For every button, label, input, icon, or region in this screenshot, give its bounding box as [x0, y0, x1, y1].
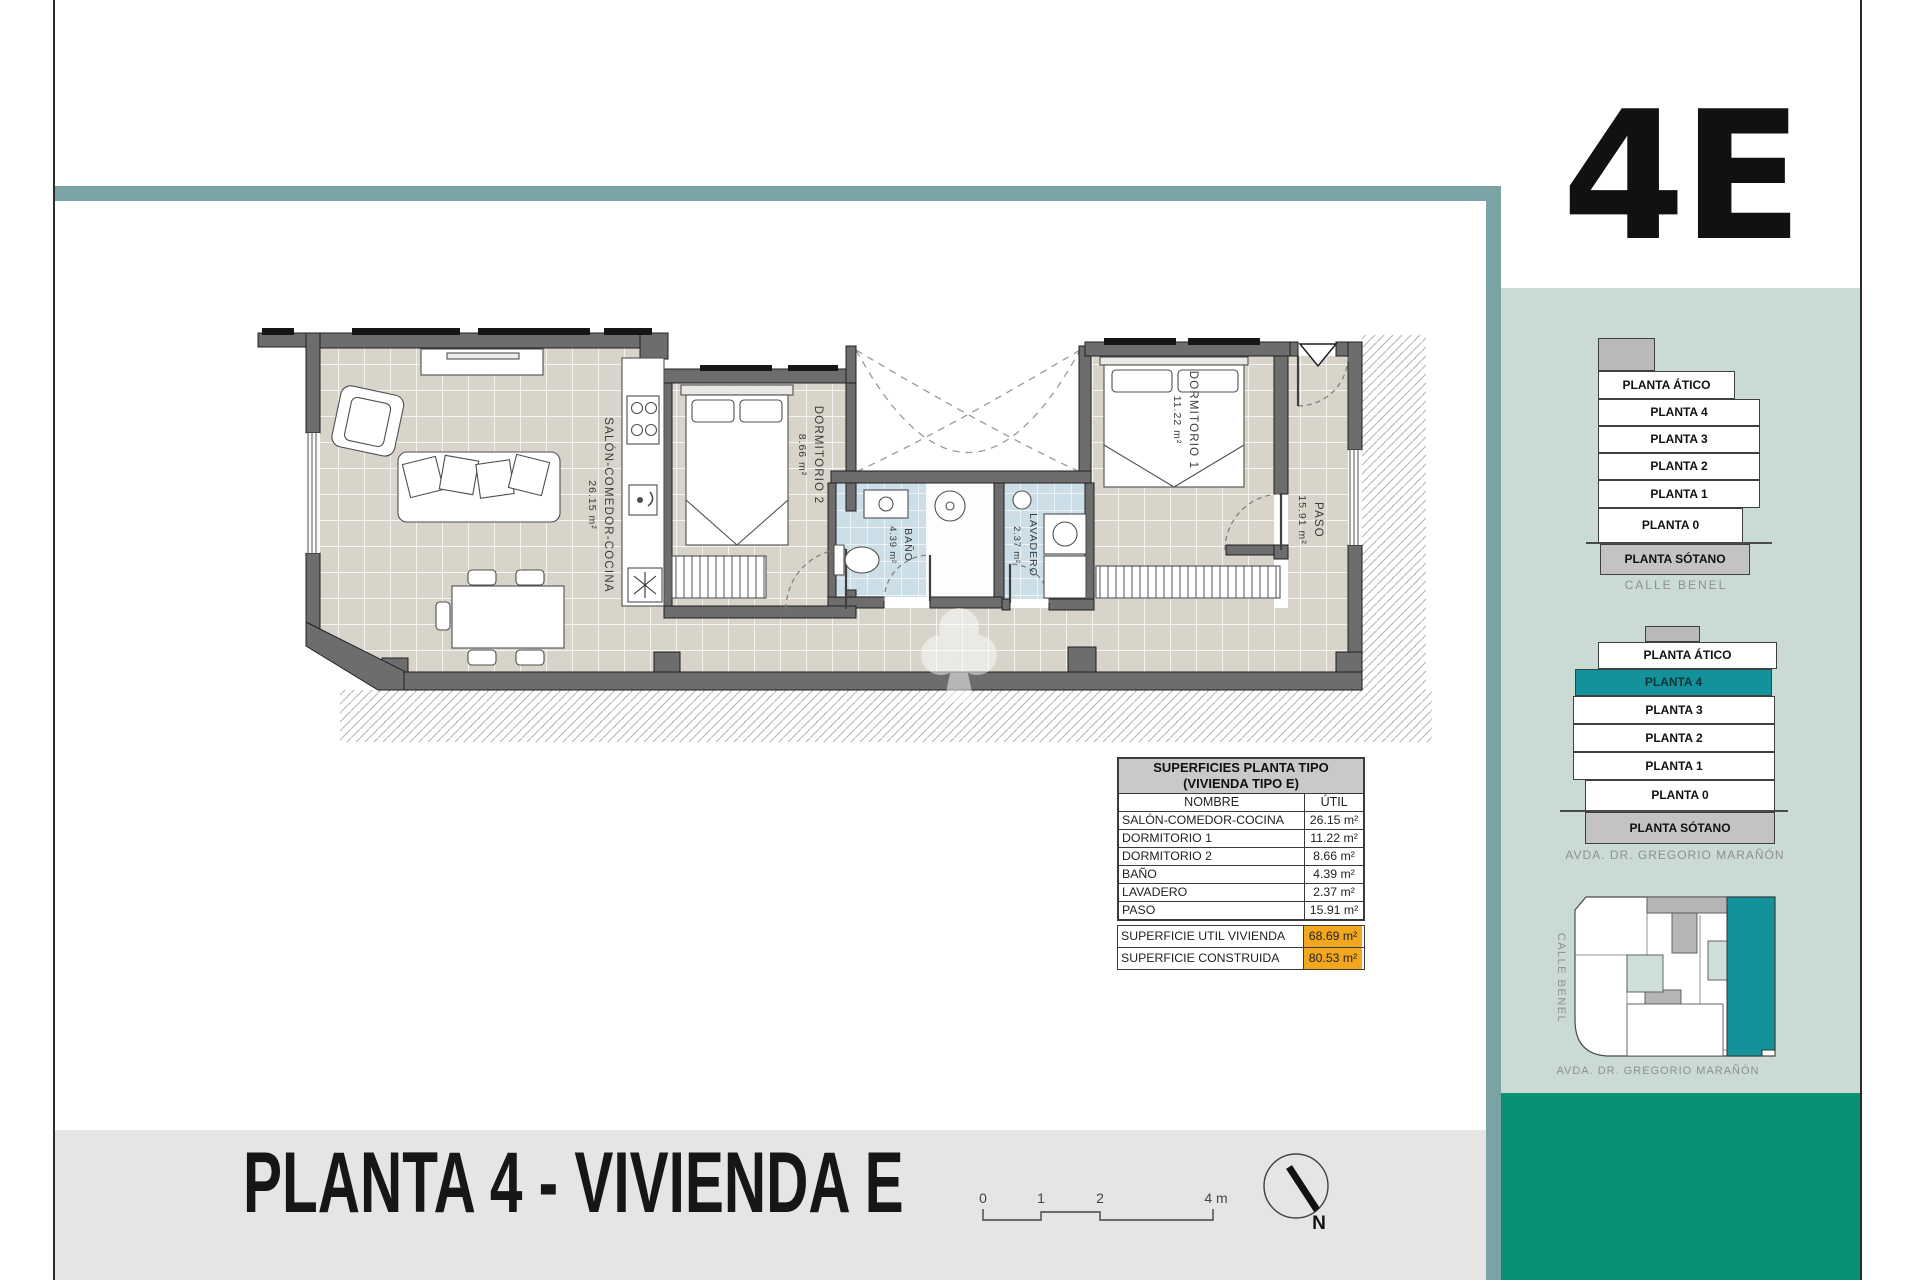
label-dorm2-area: 8.66 m²: [796, 434, 808, 477]
left-wall: [306, 333, 320, 433]
sofa: [398, 452, 560, 522]
table-row: DORMITORIO 2 8.66 m²: [1119, 848, 1363, 866]
row-name: DORMITORIO 1: [1119, 830, 1305, 847]
wardrobe-paso: [1096, 566, 1280, 598]
scale-tick-0: 0: [979, 1190, 987, 1206]
surfaces-table-title: SUPERFICIES PLANTA TIPO (VIVIENDA TIPO E…: [1119, 759, 1363, 794]
row-util: 4.39 m²: [1305, 866, 1363, 883]
floor-item-planta1[interactable]: PLANTA 1: [1573, 752, 1775, 780]
summary-value-highlight: 80.53 m²: [1304, 948, 1362, 969]
scale-labels: 0 1 2 4 m: [979, 1190, 1228, 1206]
row-util: 26.15 m²: [1305, 812, 1363, 829]
label-paso: PASO: [1312, 502, 1324, 538]
roof-box: [1598, 338, 1655, 371]
label-lavadero-area: 2.37 m²: [1011, 526, 1022, 564]
washbasin: [864, 490, 908, 518]
floor-item-sotano[interactable]: PLANTA SÓTANO: [1585, 812, 1775, 844]
row-util: 8.66 m²: [1305, 848, 1363, 865]
floor-item-planta4[interactable]: PLANTA 4: [1598, 399, 1760, 426]
north-label: N: [1312, 1213, 1326, 1234]
frame-line-right: [1860, 0, 1862, 1280]
site-key-plan: CALLE BENEL AVDA. DR. GREGORIO MARAÑÓN: [1540, 888, 1810, 1088]
row-name: BAÑO: [1119, 866, 1305, 883]
table-row: DORMITORIO 1 11.22 m²: [1119, 830, 1363, 848]
right-wall: [1348, 342, 1362, 450]
sidebar-footer-band: [1501, 1093, 1860, 1280]
surfaces-table-title-line1: SUPERFICIES PLANTA TIPO: [1119, 760, 1363, 776]
surface-summary-table: SUPERFICIE UTIL VIVIENDA 68.69 m² SUPERF…: [1117, 925, 1365, 970]
col-header-nombre: NOMBRE: [1119, 794, 1305, 811]
site-street-side: CALLE BENEL: [1555, 933, 1567, 1023]
toilet: [845, 547, 879, 573]
floor-item-planta2[interactable]: PLANTA 2: [1598, 453, 1760, 480]
col-header-util: ÚTIL: [1305, 794, 1363, 811]
wardrobe-dorm2: [672, 556, 766, 598]
kitchen-counter: [622, 358, 664, 606]
label-dorm2: DORMITORIO 2: [812, 406, 824, 505]
lower-wing: [1627, 1004, 1723, 1056]
surfaces-table: SUPERFICIES PLANTA TIPO (VIVIENDA TIPO E…: [1117, 757, 1365, 921]
roof-box: [1645, 626, 1700, 642]
unit-code: 4E: [1501, 88, 1860, 266]
right-window: [1348, 450, 1362, 545]
top-wall-salon: [306, 333, 668, 348]
scale-tick-1: 1: [1037, 1190, 1045, 1206]
surfaces-table-title-line2: (VIVIENDA TIPO E): [1119, 776, 1363, 792]
page-title: PLANTA 4 - VIVIENDA E: [243, 1140, 904, 1226]
top-wall-dorm2: [664, 369, 852, 383]
row-name: SALÓN-COMEDOR-COCINA: [1119, 812, 1305, 829]
summary-label: SUPERFICIE UTIL VIVIENDA: [1118, 926, 1304, 947]
left-window: [306, 433, 320, 553]
table-row: SALÓN-COMEDOR-COCINA 26.15 m²: [1119, 812, 1363, 830]
teal-divider-vertical: [1486, 186, 1501, 1280]
table-row: LAVADERO 2.37 m²: [1119, 884, 1363, 902]
north-arrow: N: [1264, 1154, 1328, 1234]
label-paso-area: 15.91 m²: [1296, 495, 1308, 544]
floor-item-planta4-selected[interactable]: PLANTA 4: [1575, 669, 1772, 696]
label-dorm1: DORMITORIO 1: [1187, 371, 1199, 470]
bottom-wall: [380, 672, 1362, 690]
bed-dorm2: [681, 385, 793, 545]
label-salon: SALÓN-COMEDOR-COCINA: [602, 417, 615, 592]
row-name: DORMITORIO 2: [1119, 848, 1305, 865]
label-lavadero: LAVADERO: [1027, 513, 1039, 577]
surfaces-table-header-row: NOMBRE ÚTIL: [1119, 794, 1363, 812]
floor-item-planta1[interactable]: PLANTA 1: [1598, 480, 1760, 508]
floor-item-planta0[interactable]: PLANTA 0: [1598, 508, 1743, 543]
floor-item-atico[interactable]: PLANTA ÁTICO: [1598, 642, 1777, 669]
floor-item-planta0[interactable]: PLANTA 0: [1585, 780, 1775, 811]
label-bano: BAÑO: [902, 528, 915, 562]
washer: [1044, 514, 1086, 554]
scale-tick-2: 2: [1096, 1190, 1104, 1206]
scale-tick-4m: 4 m: [1204, 1190, 1227, 1206]
summary-label: SUPERFICIE CONSTRUIDA: [1118, 948, 1304, 969]
floor-item-atico[interactable]: PLANTA ÁTICO: [1598, 371, 1735, 399]
summary-row: SUPERFICIE UTIL VIVIENDA 68.69 m²: [1118, 926, 1364, 948]
plan-sheet: SALÓN-COMEDOR-COCINA 26.15 m² DORMITORIO…: [0, 0, 1920, 1280]
floor-plan: SALÓN-COMEDOR-COCINA 26.15 m² DORMITORIO…: [240, 290, 1450, 770]
table-row: PASO 15.91 m²: [1119, 902, 1363, 919]
teal-divider-horizontal: [55, 186, 1486, 201]
row-name: LAVADERO: [1119, 884, 1305, 901]
street-caption-front: AVDA. DR. GREGORIO MARAÑÓN: [1565, 848, 1785, 862]
scale-and-north: 0 1 2 4 m N: [950, 1135, 1370, 1255]
label-dorm1-area: 11.22 m²: [1171, 396, 1183, 445]
north-needle: [1289, 1167, 1317, 1210]
summary-value-highlight: 68.69 m²: [1304, 926, 1362, 947]
row-util: 11.22 m²: [1305, 830, 1363, 847]
street-caption-side: CALLE BENEL: [1586, 578, 1766, 592]
table-row: BAÑO 4.39 m²: [1119, 866, 1363, 884]
label-salon-area: 26.15 m²: [586, 480, 598, 529]
floor-item-planta2[interactable]: PLANTA 2: [1573, 724, 1775, 752]
floor-item-planta3[interactable]: PLANTA 3: [1598, 426, 1760, 453]
round-basin: [935, 491, 965, 521]
dorm2-bottom-wall: [664, 606, 856, 618]
unit-e-highlight: [1727, 897, 1775, 1056]
row-util: 2.37 m²: [1305, 884, 1363, 901]
floor-item-planta3[interactable]: PLANTA 3: [1573, 696, 1775, 724]
scale-bar: [983, 1209, 1213, 1220]
row-name: PASO: [1119, 902, 1305, 919]
site-street-front: AVDA. DR. GREGORIO MARAÑÓN: [1556, 1064, 1759, 1077]
dryer: [1044, 556, 1086, 598]
armchair: [330, 384, 405, 458]
label-bano-area: 4.39 m²: [887, 526, 898, 564]
toilet-tank: [834, 545, 844, 575]
row-util: 15.91 m²: [1305, 902, 1363, 919]
floor-item-sotano[interactable]: PLANTA SÓTANO: [1600, 544, 1750, 575]
summary-row: SUPERFICIE CONSTRUIDA 80.53 m²: [1118, 948, 1364, 969]
